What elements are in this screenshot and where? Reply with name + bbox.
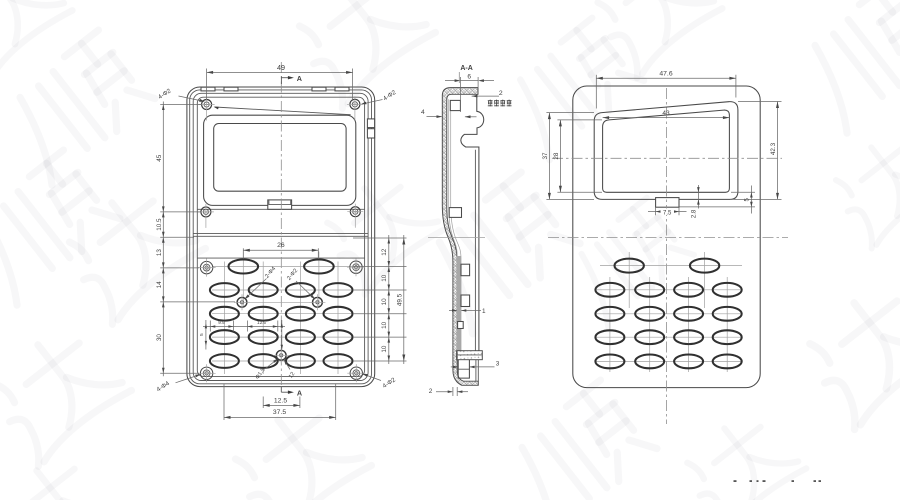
svg-text:10: 10 — [381, 321, 388, 329]
svg-text:2.8: 2.8 — [691, 209, 697, 218]
svg-text:7.5: 7.5 — [663, 211, 672, 217]
svg-text:45: 45 — [156, 154, 163, 162]
svg-text:10: 10 — [381, 345, 388, 353]
svg-text:4: 4 — [421, 109, 425, 116]
svg-text:12: 12 — [288, 371, 296, 380]
svg-text:14: 14 — [156, 281, 163, 289]
svg-text:10: 10 — [381, 274, 388, 282]
svg-text:12.5: 12.5 — [274, 397, 287, 404]
svg-text:47.6: 47.6 — [659, 70, 672, 77]
svg-text:A-A: A-A — [460, 65, 472, 72]
svg-text:A: A — [297, 388, 302, 397]
svg-text:4-Φ2: 4-Φ2 — [382, 89, 398, 103]
svg-text:5: 5 — [745, 197, 751, 201]
svg-text:9.5: 9.5 — [218, 320, 225, 325]
svg-text:Φ1.5: Φ1.5 — [255, 367, 267, 380]
svg-text:3: 3 — [496, 360, 500, 367]
svg-text:2: 2 — [499, 90, 503, 97]
svg-text:12.5: 12.5 — [257, 320, 266, 325]
svg-text:37.5: 37.5 — [273, 409, 286, 416]
svg-text:49.5: 49.5 — [396, 293, 403, 306]
svg-text:26: 26 — [277, 242, 285, 249]
svg-text:43: 43 — [662, 110, 670, 117]
svg-text:12: 12 — [381, 248, 388, 256]
svg-text:1: 1 — [482, 308, 486, 315]
svg-text:42.3: 42.3 — [770, 142, 777, 155]
svg-text:4-Φ4: 4-Φ4 — [155, 380, 171, 394]
svg-text:4-Φ2: 4-Φ2 — [157, 87, 173, 101]
svg-text:49: 49 — [277, 63, 285, 72]
svg-text:5: 5 — [199, 333, 205, 336]
svg-text:2-Φ4: 2-Φ4 — [264, 265, 277, 279]
svg-text:10: 10 — [381, 298, 388, 306]
svg-text:13: 13 — [156, 249, 163, 257]
svg-text:37: 37 — [542, 152, 549, 160]
svg-text:6: 6 — [467, 74, 471, 81]
svg-text:2-Φ2: 2-Φ2 — [286, 268, 299, 282]
svg-text:28: 28 — [553, 152, 560, 160]
svg-text:A: A — [297, 74, 302, 83]
svg-text:30: 30 — [156, 334, 163, 342]
svg-text:4-Φ2: 4-Φ2 — [381, 376, 397, 390]
svg-text:10.5: 10.5 — [156, 218, 163, 231]
svg-text:2: 2 — [429, 388, 433, 395]
